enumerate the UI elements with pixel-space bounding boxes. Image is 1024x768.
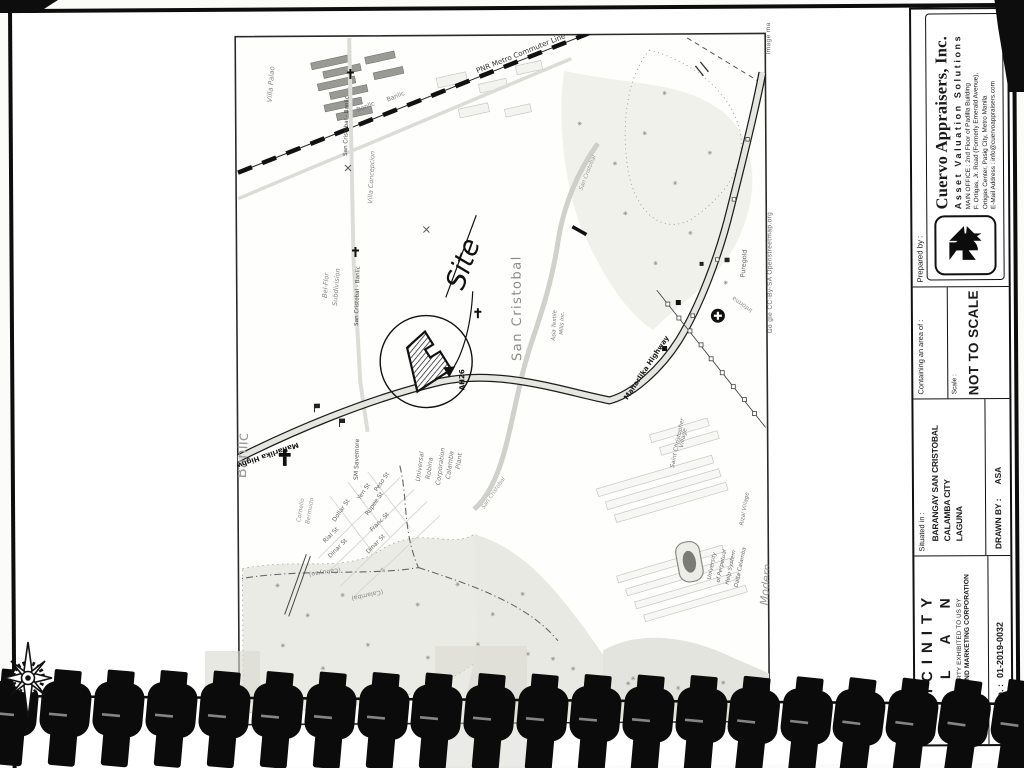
situated-line-2: CALAMBA CITY [941, 399, 954, 541]
map-label-asia-textile-2: Mills Inc. [559, 311, 566, 335]
image-note: Image ma [765, 8, 775, 54]
situated-label: Situated in : [913, 399, 926, 555]
map-attribution: Go gle CC-By-SA Openstreetmap.org [765, 53, 779, 333]
company-tagline: Asset Valuation Solutions [952, 34, 963, 210]
situated-line-1: BARANGAY SAN CRISTOBAL [928, 399, 941, 541]
drawn-by-value: ASA [993, 467, 1003, 485]
prepared-by-label: Prepared by : [911, 9, 925, 286]
poi-square [676, 300, 681, 305]
company-address-4: E-Mail Address : info@cuervoappraisers.c… [989, 34, 999, 210]
title-cell-prepared: Prepared by : Cuervo Appraiser [911, 9, 1009, 288]
map-label-sm-savemore: SM Savemore [353, 438, 361, 480]
hospital-icon [711, 309, 725, 323]
spiral-binding [0, 646, 1024, 768]
situated-line-3: LAGUNA [953, 399, 966, 541]
title-cell-situated: Situated in : BARANGAY SAN CRISTOBAL CAL… [913, 399, 1010, 557]
scale-label: Scale : [948, 287, 959, 398]
company-box: Cuervo Appraisers, Inc. Asset Valuation … [925, 13, 1005, 280]
title-block: VICINITY PLAN PROPERTY EXHIBITED TO US B… [909, 7, 1014, 747]
cuervo-logo-icon [934, 215, 996, 275]
scale-value: NOT TO SCALE [966, 287, 982, 398]
drawn-by-row: DRAWN BY : ASA [984, 399, 1010, 555]
situated-lines: BARANGAY SAN CRISTOBAL CALAMBA CITY LAGU… [925, 399, 966, 555]
map-label-ah26: AH26 [458, 369, 466, 390]
drawn-by-label: DRAWN BY : [993, 498, 1003, 549]
vicinity-map: Site PNR Metro Commuter Line Villa Palao… [219, 27, 771, 730]
company-name: Cuervo Appraisers, Inc. [931, 34, 952, 210]
containing-area-label: Containing an area of : [913, 287, 926, 398]
compass-rose-icon [0, 638, 58, 730]
scanned-page: Site PNR Metro Commuter Line Villa Palao… [0, 0, 1024, 768]
title-cell-scale: Containing an area of : Scale : NOT TO S… [913, 287, 1010, 400]
map-label-san-cristobal-area: San Cristobal [510, 255, 526, 361]
map-label-banlic-area: Banlic [232, 432, 252, 478]
